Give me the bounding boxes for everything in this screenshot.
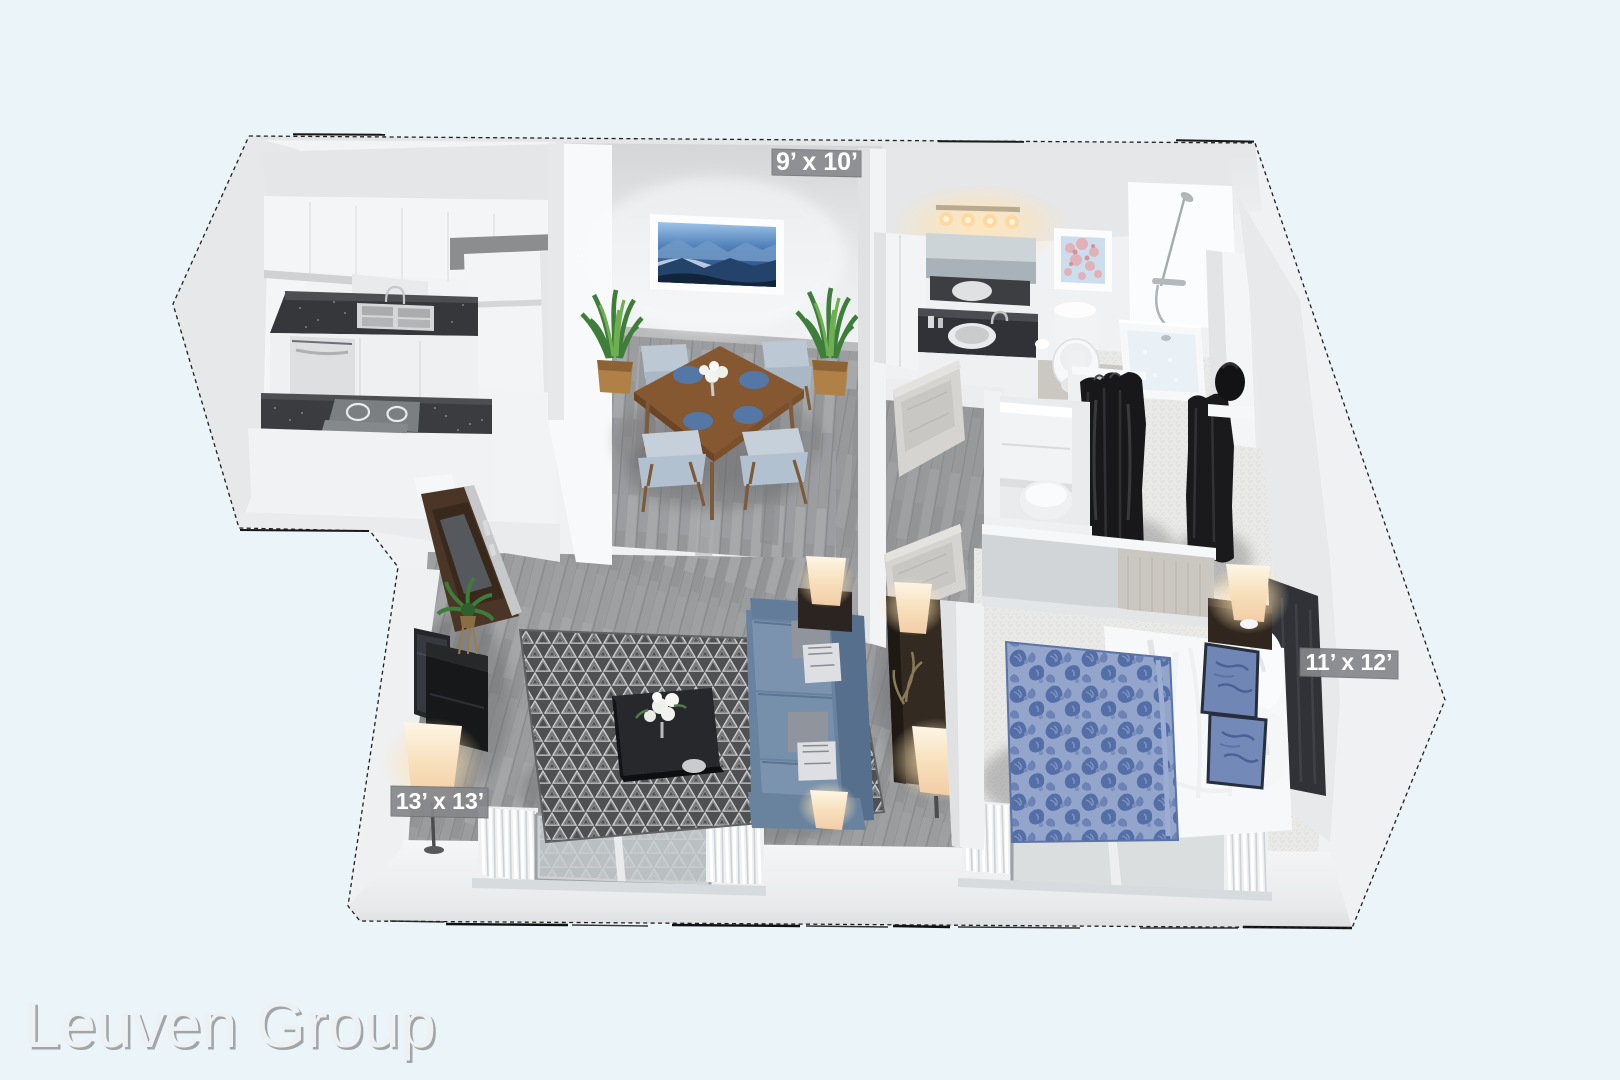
svg-text:9’ x 10’: 9’ x 10’ [776,148,858,176]
svg-text:13’ x 13’: 13’ x 13’ [396,788,484,814]
svg-text:Leuven Group: Leuven Group [24,988,436,1061]
svg-text:11’ x 12’: 11’ x 12’ [1306,649,1393,675]
